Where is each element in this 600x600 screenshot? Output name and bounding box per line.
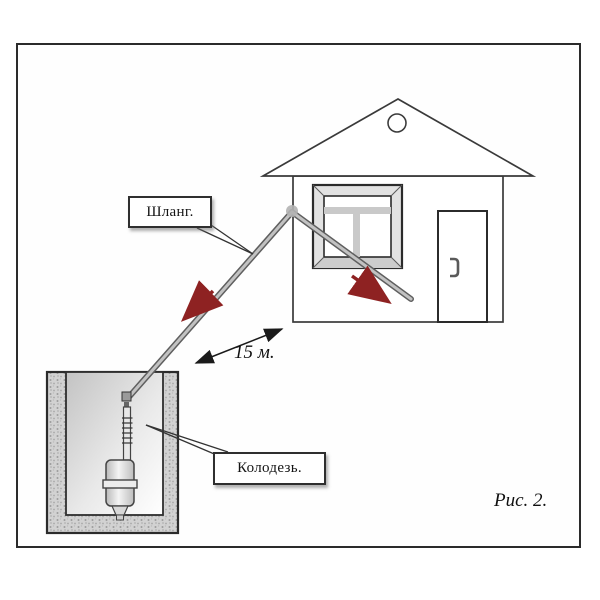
window-muntin-horizontal — [324, 207, 391, 214]
house-window — [313, 185, 402, 268]
hose-label-box: Шланг. — [128, 196, 212, 228]
hose-fitting — [122, 392, 131, 401]
well-label-box: Колодезь. — [213, 452, 326, 485]
house-roof — [263, 99, 533, 176]
hose-label-leaders — [197, 225, 253, 254]
pump-nozzle-tip — [117, 515, 124, 520]
window-muntin-vertical — [353, 214, 360, 257]
hose-label: Шланг. — [146, 204, 193, 221]
figure-canvas: Шланг. Колодезь. 15 м. Рис. 2. — [0, 0, 600, 600]
well-label: Колодезь. — [237, 460, 302, 477]
house-door — [438, 211, 487, 322]
hose-fitting-nut — [124, 402, 129, 407]
gable-window-circle — [388, 114, 406, 132]
well — [47, 372, 178, 533]
pump-collar — [103, 480, 137, 488]
hose-corner-joint — [286, 205, 298, 217]
distance-label: 15 м. — [234, 342, 275, 364]
figure-caption: Рис. 2. — [494, 490, 547, 512]
